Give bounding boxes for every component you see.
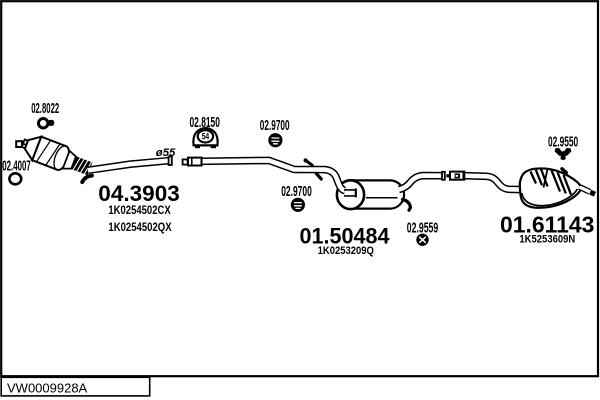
svg-text:02.8022: 02.8022 (31, 100, 59, 117)
svg-text:1K0254502CX: 1K0254502CX (108, 205, 171, 217)
svg-text:02.9700: 02.9700 (281, 183, 312, 200)
svg-text:54: 54 (202, 132, 210, 142)
svg-text:VW0009928A: VW0009928A (7, 380, 88, 395)
svg-text:02.4007: 02.4007 (2, 158, 31, 175)
svg-text:1K5253609N: 1K5253609N (519, 234, 575, 246)
svg-text:02.9700: 02.9700 (260, 117, 290, 134)
svg-text:02.8150: 02.8150 (190, 114, 220, 131)
svg-text:1K0254502QX: 1K0254502QX (108, 222, 171, 234)
svg-text:1K0253209Q: 1K0253209Q (318, 245, 374, 257)
svg-text:04.3903: 04.3903 (98, 181, 180, 206)
svg-text:ø55: ø55 (156, 147, 176, 159)
svg-text:02.9559: 02.9559 (407, 219, 438, 236)
svg-text:02.9550: 02.9550 (548, 134, 578, 151)
